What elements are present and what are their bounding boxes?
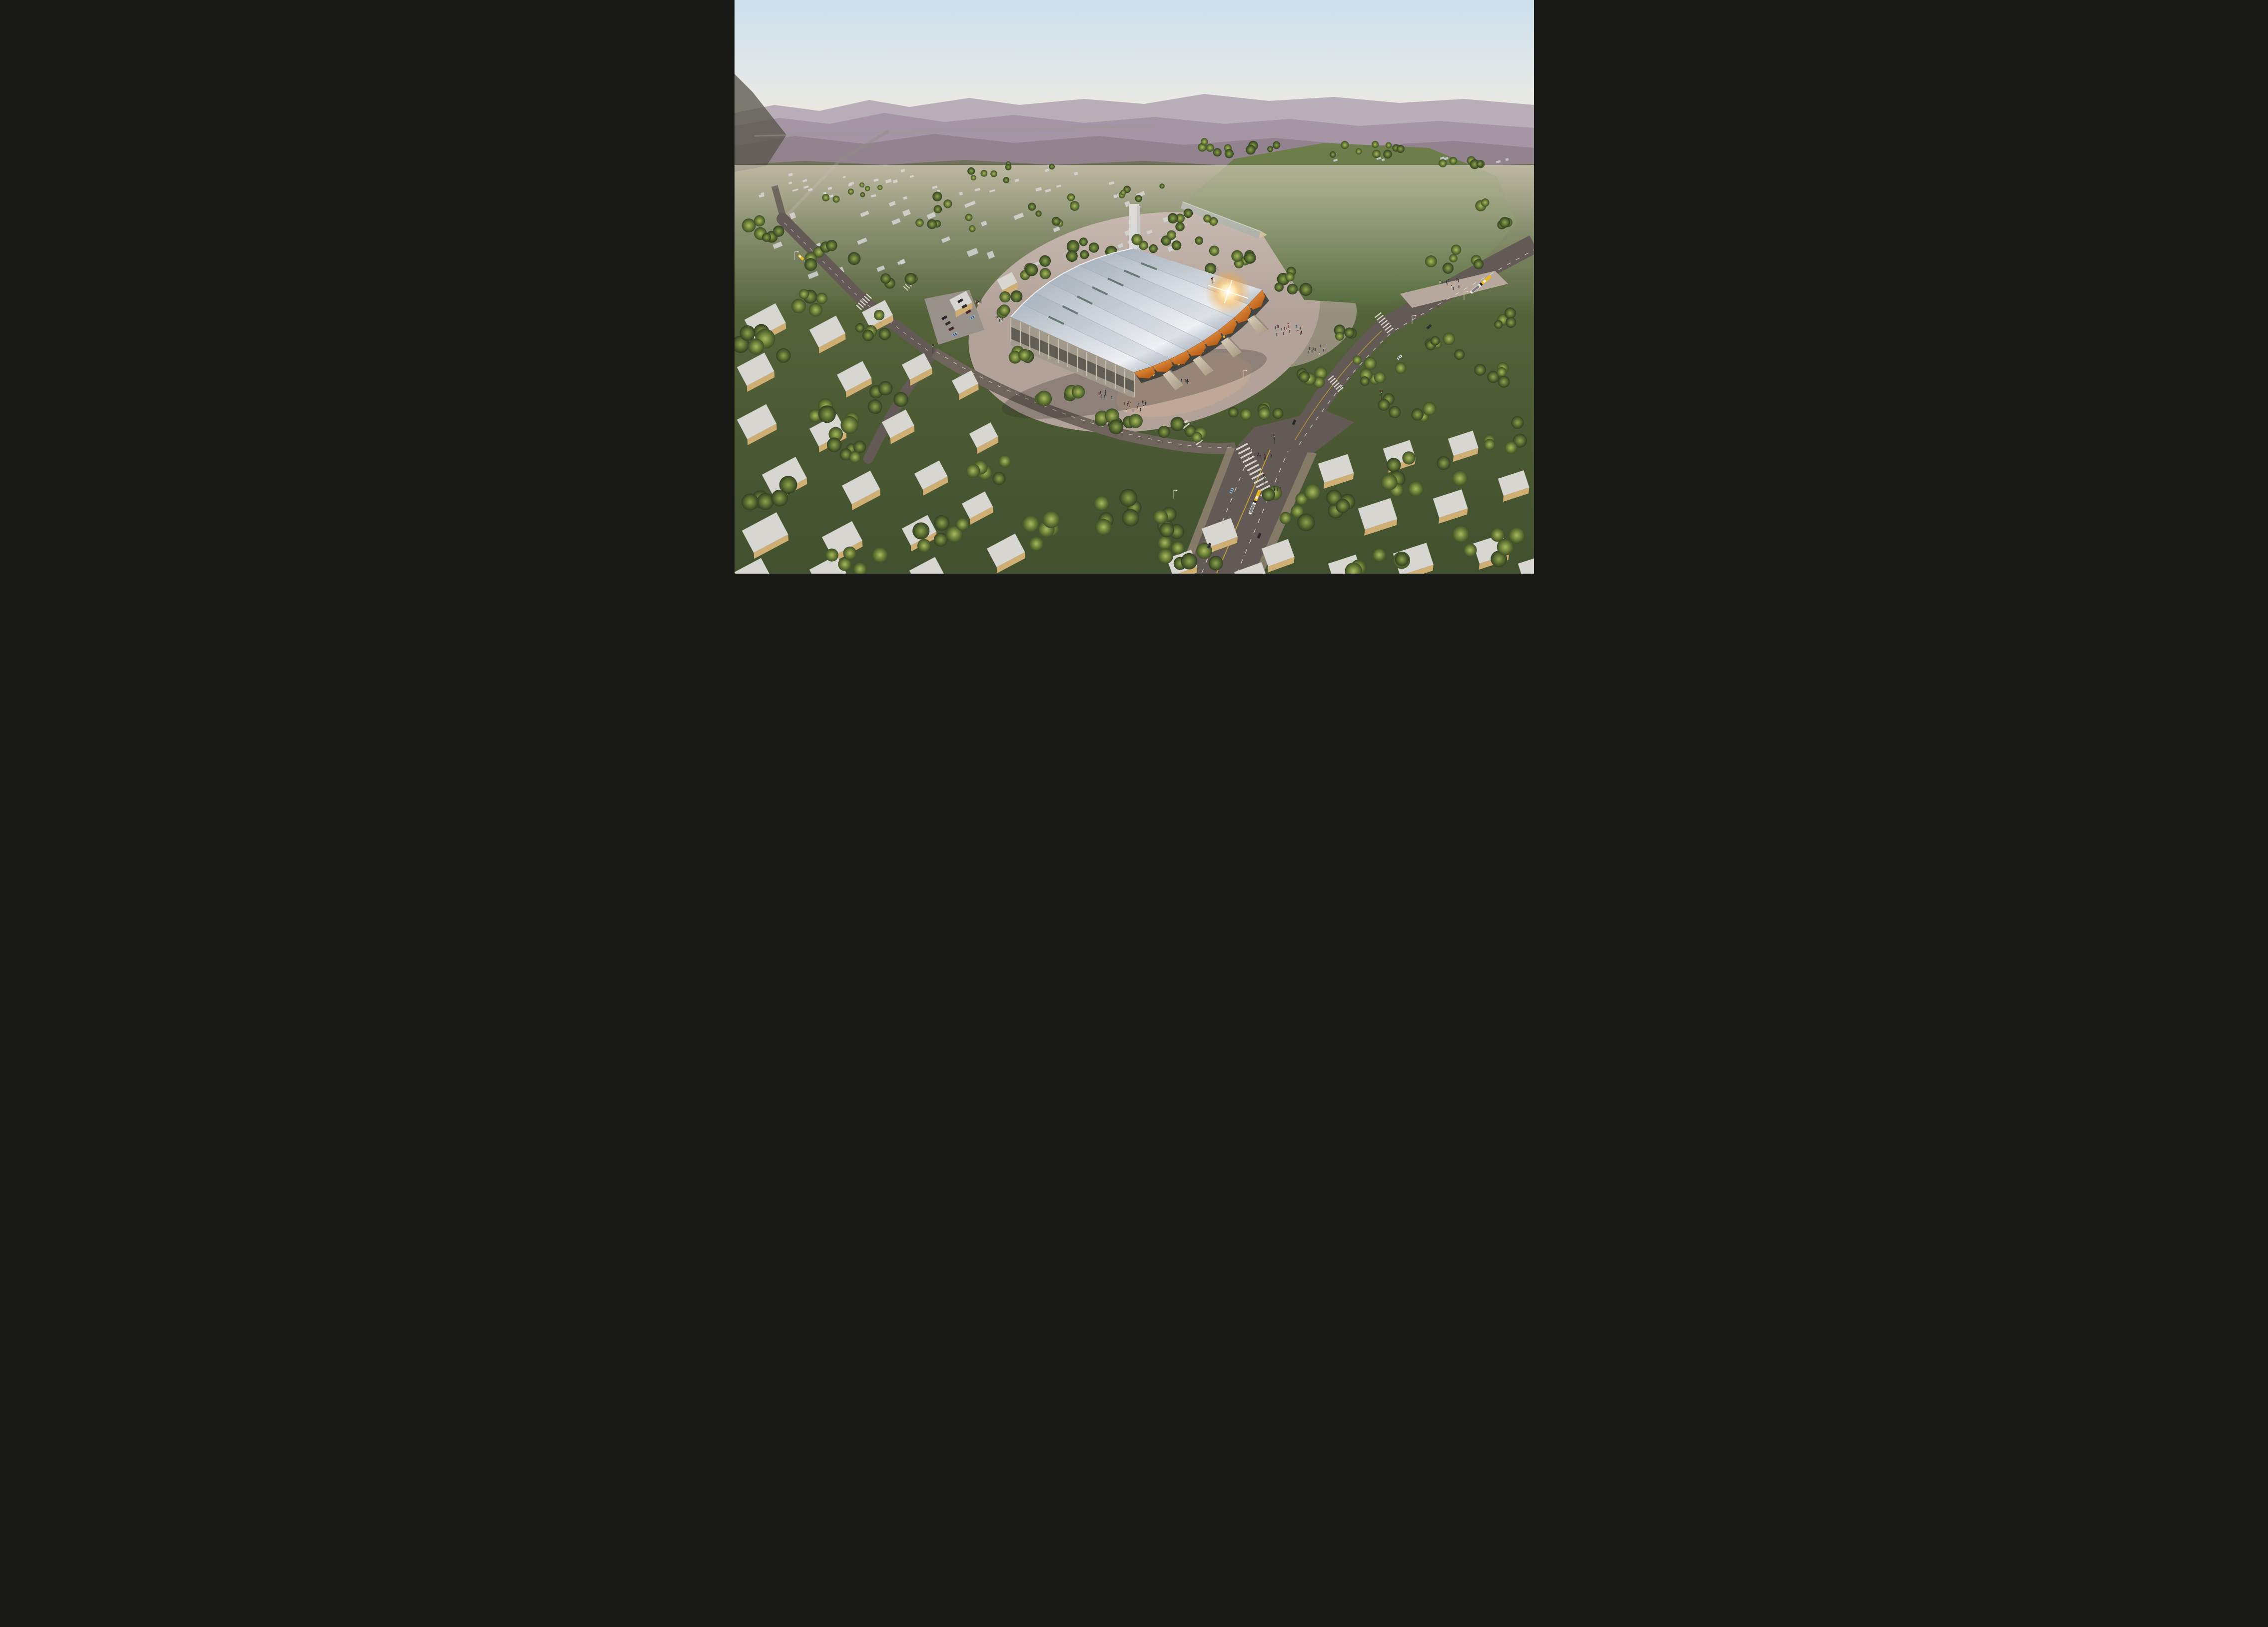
tree bbox=[846, 443, 857, 454]
person bbox=[1186, 381, 1187, 383]
center-line-northeast bbox=[1295, 331, 1382, 440]
distant-building bbox=[1440, 156, 1444, 160]
tree bbox=[1506, 317, 1516, 328]
tree bbox=[1392, 144, 1400, 152]
plaza-warm-patch bbox=[1109, 340, 1259, 430]
main-road bbox=[1187, 448, 1308, 574]
person-head bbox=[1145, 402, 1146, 403]
tree bbox=[1425, 339, 1434, 348]
person-head bbox=[1259, 455, 1260, 456]
house-wall bbox=[1322, 473, 1355, 489]
house-wall bbox=[994, 552, 1027, 573]
distant-building bbox=[1333, 159, 1338, 162]
crosswalk-stripe bbox=[1189, 431, 1196, 437]
person-head bbox=[1138, 403, 1139, 404]
intersection bbox=[1235, 410, 1354, 453]
tree bbox=[1056, 220, 1063, 227]
crosswalk-stripe bbox=[1335, 384, 1341, 390]
house-wall bbox=[830, 541, 865, 563]
crosswalk-stripe bbox=[1260, 489, 1273, 496]
house-roof bbox=[902, 353, 932, 380]
tree bbox=[1024, 263, 1034, 273]
bus-rear-section bbox=[1254, 490, 1261, 502]
tree bbox=[1034, 393, 1046, 405]
rib-seam bbox=[1022, 304, 1152, 366]
person-head bbox=[1287, 323, 1288, 324]
lamp-glow bbox=[1467, 291, 1468, 293]
distant-building bbox=[1045, 169, 1049, 172]
tower-shade-face bbox=[1137, 206, 1140, 254]
tree bbox=[927, 219, 937, 229]
house bbox=[1316, 454, 1355, 489]
house bbox=[1431, 489, 1470, 524]
tree bbox=[1205, 263, 1216, 274]
person bbox=[1142, 402, 1143, 404]
house-roof bbox=[1358, 498, 1397, 530]
house bbox=[1356, 498, 1399, 536]
tree bbox=[826, 240, 837, 251]
house-roof bbox=[962, 492, 993, 519]
tree bbox=[1023, 305, 1037, 319]
person-head bbox=[1100, 391, 1101, 392]
tree bbox=[1277, 273, 1289, 285]
person bbox=[1275, 327, 1276, 329]
crosswalk-stripe bbox=[1376, 315, 1383, 321]
crosswalk-stripe bbox=[903, 286, 908, 291]
street-furniture bbox=[794, 251, 1468, 499]
tree bbox=[804, 252, 817, 265]
green-light bbox=[1263, 476, 1264, 477]
tree bbox=[864, 325, 877, 338]
tree bbox=[980, 170, 987, 177]
orange-arch bbox=[1134, 366, 1155, 378]
tree bbox=[1198, 143, 1207, 152]
person-head bbox=[1105, 392, 1106, 393]
tree bbox=[1350, 560, 1366, 574]
tree bbox=[880, 273, 890, 284]
crosswalk-stripe bbox=[910, 278, 915, 283]
southwest-road bbox=[868, 354, 933, 459]
roof-rib-shade bbox=[1049, 273, 1203, 351]
person-head bbox=[1319, 352, 1320, 353]
person-head bbox=[1184, 379, 1185, 380]
sun-glint-star bbox=[1204, 274, 1252, 310]
person bbox=[1287, 324, 1288, 326]
tree bbox=[754, 215, 764, 226]
house-roof bbox=[837, 361, 871, 392]
person bbox=[1187, 380, 1188, 382]
parking-lot bbox=[924, 290, 984, 345]
distant-building bbox=[857, 238, 867, 245]
car bbox=[1257, 533, 1261, 539]
tree bbox=[867, 399, 882, 414]
grass-base bbox=[735, 165, 1534, 574]
house-wall bbox=[953, 302, 974, 317]
tree bbox=[1066, 240, 1079, 253]
tree bbox=[1005, 161, 1011, 167]
tree bbox=[1296, 368, 1308, 380]
person-head bbox=[1281, 328, 1282, 329]
distant-building bbox=[981, 221, 987, 226]
distant-building bbox=[1045, 189, 1051, 192]
green-light bbox=[932, 346, 933, 347]
house-wall bbox=[1206, 537, 1239, 553]
crosswalk-stripe bbox=[865, 293, 871, 299]
house-roof bbox=[1318, 454, 1354, 483]
tree bbox=[1153, 510, 1168, 524]
person-head bbox=[1188, 381, 1189, 382]
tree bbox=[864, 186, 870, 191]
tree bbox=[1246, 145, 1256, 155]
tree bbox=[832, 196, 839, 203]
person-head bbox=[1284, 327, 1285, 328]
tree bbox=[1411, 408, 1424, 421]
person-head bbox=[1297, 330, 1298, 331]
tree bbox=[1003, 177, 1009, 183]
person bbox=[1128, 402, 1129, 404]
house bbox=[949, 370, 981, 400]
tree bbox=[1497, 539, 1513, 556]
person-head bbox=[1142, 401, 1143, 402]
foreground-hill-corner bbox=[735, 74, 786, 172]
traffic-light bbox=[1263, 474, 1265, 484]
tree bbox=[1454, 349, 1465, 360]
lane-dash-northeast bbox=[1299, 250, 1534, 445]
person bbox=[1138, 404, 1139, 406]
distant-building bbox=[1381, 158, 1385, 161]
tree bbox=[1382, 393, 1394, 405]
trees-background bbox=[735, 138, 1527, 574]
car bbox=[969, 315, 975, 320]
tree bbox=[1011, 346, 1024, 359]
distant-building bbox=[807, 188, 812, 191]
sky-gradient bbox=[735, 0, 1534, 180]
person-head bbox=[1181, 379, 1182, 380]
house-roof bbox=[1234, 562, 1268, 574]
crosswalk-stripe bbox=[1180, 420, 1187, 426]
tree bbox=[1248, 141, 1258, 151]
parking-row-line bbox=[949, 295, 1022, 327]
roof-rib-shade bbox=[1079, 258, 1234, 330]
tree bbox=[762, 233, 771, 242]
tree bbox=[1244, 252, 1256, 264]
person-head bbox=[1101, 394, 1102, 395]
tree bbox=[1291, 505, 1304, 518]
vehicles bbox=[797, 254, 1492, 549]
distant-building bbox=[842, 176, 845, 178]
distant-building bbox=[986, 251, 994, 259]
tree bbox=[1299, 283, 1312, 296]
house-roof bbox=[1473, 534, 1509, 564]
tree bbox=[1008, 351, 1021, 364]
person-head bbox=[1258, 453, 1259, 454]
person bbox=[1277, 326, 1278, 328]
house-roof bbox=[762, 457, 807, 496]
lamp-glow bbox=[797, 251, 798, 253]
person-head bbox=[1142, 400, 1143, 401]
tree bbox=[1171, 418, 1184, 431]
atmospheric-haze bbox=[735, 165, 1534, 315]
person-head bbox=[1105, 390, 1106, 391]
house-roof bbox=[909, 557, 944, 574]
house bbox=[1199, 518, 1239, 554]
distant-building bbox=[1505, 158, 1509, 161]
tree bbox=[1234, 259, 1243, 268]
tree bbox=[1393, 552, 1410, 569]
house-roof bbox=[997, 272, 1017, 290]
house-wall bbox=[1000, 282, 1020, 296]
tree bbox=[1497, 220, 1506, 229]
crosswalk-stripe bbox=[1238, 447, 1250, 455]
tree bbox=[847, 188, 853, 194]
distant-building bbox=[891, 218, 900, 225]
ring-road bbox=[934, 353, 1236, 449]
tree bbox=[1175, 214, 1185, 223]
distant-building bbox=[964, 201, 975, 208]
orange-arch bbox=[1248, 290, 1265, 310]
house bbox=[1446, 431, 1480, 462]
stair-side-wall bbox=[1169, 370, 1185, 385]
distant-building bbox=[807, 271, 818, 279]
field-turf bbox=[1184, 143, 1516, 305]
tree bbox=[1028, 203, 1036, 211]
tree bbox=[969, 225, 975, 232]
person-head bbox=[1127, 401, 1128, 402]
tree bbox=[1231, 250, 1243, 262]
person bbox=[1212, 280, 1213, 282]
tree bbox=[1071, 385, 1085, 399]
house-wall bbox=[974, 437, 1000, 454]
person-head bbox=[1323, 349, 1324, 350]
distant-building bbox=[1074, 172, 1078, 175]
distant-building bbox=[1124, 201, 1131, 207]
crosswalk-stripe bbox=[1331, 380, 1337, 385]
tree bbox=[1123, 186, 1131, 193]
car bbox=[1292, 419, 1296, 425]
tower-body bbox=[1129, 204, 1139, 254]
house-wall bbox=[849, 489, 882, 510]
tree bbox=[1171, 240, 1181, 250]
person-head bbox=[1277, 325, 1278, 326]
distant-building bbox=[1169, 236, 1176, 243]
distant-building bbox=[902, 209, 910, 217]
person-head bbox=[1289, 330, 1290, 331]
distant-building bbox=[772, 185, 778, 189]
tree bbox=[1475, 200, 1486, 211]
person bbox=[1278, 326, 1279, 328]
person bbox=[1137, 407, 1138, 409]
house bbox=[1164, 550, 1199, 574]
person bbox=[975, 300, 976, 302]
person bbox=[1104, 396, 1105, 398]
person bbox=[996, 317, 997, 319]
tree bbox=[816, 293, 827, 304]
tree bbox=[998, 455, 1011, 468]
house-wall bbox=[908, 532, 939, 551]
tree bbox=[966, 464, 980, 478]
tree bbox=[818, 398, 833, 413]
tree bbox=[1497, 314, 1509, 326]
minibus bbox=[797, 254, 804, 261]
tree bbox=[878, 381, 892, 396]
tree bbox=[1359, 368, 1372, 381]
entrance-stair bbox=[1247, 315, 1268, 335]
person-head bbox=[1127, 403, 1128, 404]
person-head bbox=[1132, 409, 1133, 410]
person-head bbox=[1274, 488, 1275, 489]
tree bbox=[1240, 408, 1251, 420]
house-wall bbox=[816, 333, 848, 353]
person bbox=[1456, 279, 1457, 281]
tree bbox=[855, 323, 864, 332]
house bbox=[807, 316, 847, 354]
tree bbox=[803, 290, 817, 304]
tree bbox=[1364, 357, 1377, 370]
distant-building bbox=[1162, 216, 1169, 222]
distant-building bbox=[873, 178, 878, 182]
crosswalk-stripe bbox=[1236, 443, 1248, 450]
rib-seam bbox=[1035, 293, 1170, 359]
tree bbox=[1195, 236, 1203, 245]
tree bbox=[933, 205, 942, 214]
distant-building bbox=[1116, 192, 1124, 197]
northeast-road bbox=[1292, 244, 1534, 449]
house-roof bbox=[952, 370, 978, 394]
house bbox=[947, 291, 974, 317]
person-head bbox=[996, 316, 997, 317]
tree bbox=[917, 539, 930, 553]
house-roof bbox=[1167, 550, 1197, 574]
tree bbox=[1043, 521, 1059, 537]
house-wall bbox=[843, 378, 874, 397]
tree bbox=[1209, 217, 1217, 225]
tree bbox=[970, 175, 976, 180]
car-windshield bbox=[1257, 536, 1260, 538]
car-windshield bbox=[947, 322, 949, 324]
crosswalk-stripe bbox=[1247, 464, 1259, 471]
person bbox=[1264, 455, 1265, 457]
person bbox=[1258, 453, 1259, 455]
tree bbox=[859, 182, 864, 187]
bus-roof-windows bbox=[1249, 504, 1255, 513]
tree bbox=[1487, 371, 1499, 383]
tree bbox=[1157, 518, 1173, 534]
distant-building bbox=[802, 179, 807, 182]
distant-building bbox=[871, 194, 876, 198]
distant-building bbox=[803, 185, 808, 188]
rib-seam bbox=[1096, 258, 1234, 318]
distant-building bbox=[789, 212, 796, 219]
person bbox=[1300, 327, 1301, 329]
distant-building bbox=[786, 222, 797, 231]
distant-building bbox=[1443, 157, 1448, 160]
tree bbox=[813, 246, 824, 258]
skylight-strip bbox=[1048, 316, 1064, 325]
house-wall bbox=[967, 507, 995, 525]
tree bbox=[977, 465, 992, 480]
tree bbox=[820, 241, 831, 252]
person-head bbox=[1312, 347, 1313, 348]
person-head bbox=[1212, 279, 1213, 280]
tree bbox=[779, 476, 797, 494]
roof-rib bbox=[1079, 258, 1234, 330]
tree bbox=[1396, 145, 1404, 153]
person bbox=[1132, 410, 1133, 412]
car bbox=[957, 298, 963, 303]
person-head bbox=[1446, 280, 1447, 281]
car-windshield bbox=[968, 310, 970, 313]
house-roof bbox=[1518, 555, 1534, 574]
tree bbox=[1175, 222, 1184, 231]
person-head bbox=[1129, 406, 1130, 407]
tree bbox=[1442, 263, 1453, 274]
house-wall bbox=[1331, 573, 1363, 574]
car-windshield bbox=[944, 316, 946, 319]
house bbox=[899, 515, 939, 552]
house-wall bbox=[745, 371, 776, 392]
person bbox=[1098, 393, 1099, 395]
tree bbox=[955, 518, 968, 531]
house-roof bbox=[902, 515, 936, 546]
house-wall bbox=[1398, 565, 1435, 574]
distant-building bbox=[989, 189, 995, 192]
tree bbox=[1224, 149, 1233, 158]
distant-building bbox=[760, 192, 764, 195]
distant-building bbox=[828, 194, 833, 198]
articulated-bus bbox=[1248, 490, 1261, 515]
street-lamp bbox=[1173, 490, 1177, 499]
tree bbox=[1497, 367, 1507, 377]
tree bbox=[1161, 235, 1171, 246]
tree bbox=[998, 304, 1010, 316]
person bbox=[977, 303, 978, 305]
tree bbox=[840, 416, 858, 434]
tree bbox=[1020, 270, 1030, 280]
street-lamp bbox=[1412, 315, 1416, 324]
distant-building bbox=[1117, 243, 1123, 248]
house-roof bbox=[862, 300, 893, 327]
person bbox=[1187, 382, 1188, 384]
person bbox=[1188, 382, 1189, 384]
tree bbox=[1463, 543, 1477, 557]
house-roof bbox=[949, 291, 972, 311]
tree bbox=[1372, 141, 1379, 148]
tree bbox=[1476, 160, 1483, 167]
distant-building bbox=[772, 241, 782, 249]
person bbox=[1276, 334, 1277, 336]
house-roof bbox=[822, 521, 862, 557]
tree bbox=[933, 533, 947, 547]
person-head bbox=[1137, 406, 1138, 407]
skylight-strip bbox=[1140, 262, 1157, 270]
person bbox=[1319, 352, 1320, 354]
tree bbox=[1120, 190, 1126, 196]
house-wall bbox=[745, 424, 779, 445]
person bbox=[1446, 281, 1447, 283]
tree bbox=[1335, 332, 1344, 341]
tree bbox=[1378, 399, 1390, 411]
lit-window bbox=[1152, 373, 1154, 376]
house-roof bbox=[737, 404, 776, 439]
house bbox=[839, 471, 882, 510]
person bbox=[1185, 380, 1186, 382]
person-head bbox=[1001, 318, 1002, 319]
tree bbox=[1123, 416, 1135, 428]
distant-building bbox=[1116, 194, 1121, 197]
car bbox=[941, 315, 947, 320]
tree bbox=[1184, 425, 1196, 437]
house-roof bbox=[742, 512, 788, 553]
